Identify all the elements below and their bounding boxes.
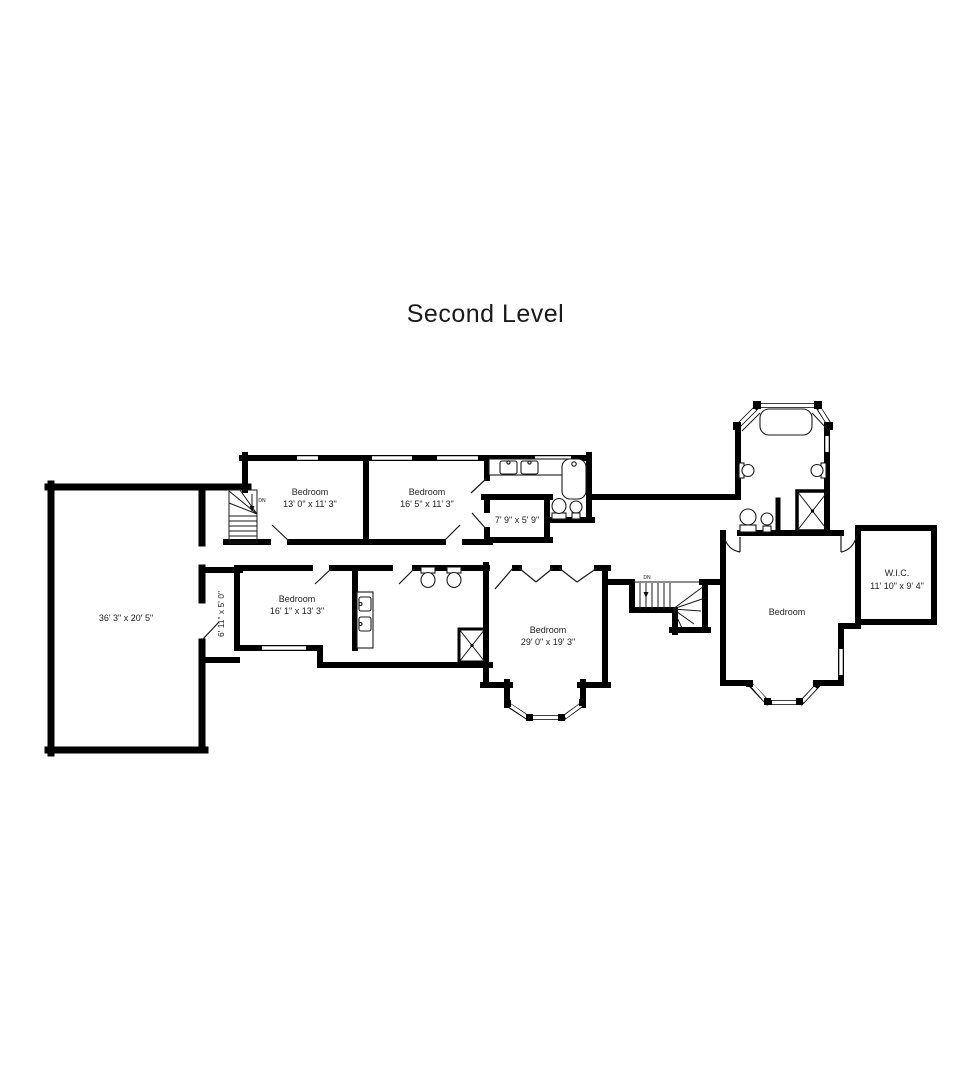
floorplan-drawing: 36' 3" x 20' 5" Bedroom 13' 0" x 11' 3" …: [0, 0, 971, 1080]
toilet-icon: [740, 509, 756, 532]
bedroom-three-dims: 16' 1" x 13' 3": [270, 606, 324, 616]
toilet-icon: [421, 567, 435, 588]
wall-sink-icon: [739, 463, 754, 478]
bedroom-five-label: Bedroom: [769, 607, 806, 617]
toilet-icon: [552, 499, 566, 520]
pedestal-sink-icon: [761, 513, 773, 532]
bedroom-two-dims: 16' 5" x 11' 3": [400, 499, 454, 509]
bedroom-four-label: Bedroom: [530, 625, 567, 635]
middle-section-walls: [202, 568, 490, 665]
stairs-main-dn: [229, 490, 257, 543]
hall-bath-fixtures: [489, 459, 586, 519]
bedroom-two-label: Bedroom: [409, 487, 446, 497]
bedroom-one-dims: 13' 0" x 11' 3": [283, 499, 337, 509]
bedroom-one-label: Bedroom: [292, 487, 329, 497]
shower-icon: [797, 491, 828, 531]
bonus-room-label: 36' 3" x 20' 5": [99, 613, 153, 623]
toilet-icon: [447, 567, 461, 588]
master-bath-fixtures: [739, 409, 829, 532]
wall-sink-icon: [811, 463, 826, 478]
bedroom-three-label: Bedroom: [279, 594, 316, 604]
shared-bath-fixtures: [357, 567, 485, 662]
stair-dn-label: DN: [643, 575, 651, 581]
bedroom-four-dims: 29' 0" x 19' 3": [521, 637, 575, 647]
bay-window-master-bedroom: [746, 680, 820, 705]
bathtub-icon: [760, 409, 812, 435]
shower-icon: [459, 629, 485, 662]
wic-label: W.I.C.: [885, 568, 910, 578]
wic-dims: 11' 10" x 9' 4": [870, 581, 924, 591]
bay-window-center-bedroom: [504, 699, 586, 721]
bath-nook-dims: 7' 9" x 5' 9": [495, 515, 539, 525]
center-bedroom-walls: [483, 565, 608, 705]
hall-closet-dims: 6' 11" x 5' 0": [216, 591, 226, 637]
pedestal-sink-icon: [570, 501, 582, 519]
right-suite-walls: [723, 425, 934, 683]
corridor-stair-walls: [589, 497, 738, 632]
stair-dn-label: DN: [258, 498, 266, 504]
stairs-secondary-dn: [632, 582, 705, 628]
floorplan-page: Second Level: [0, 0, 971, 1080]
